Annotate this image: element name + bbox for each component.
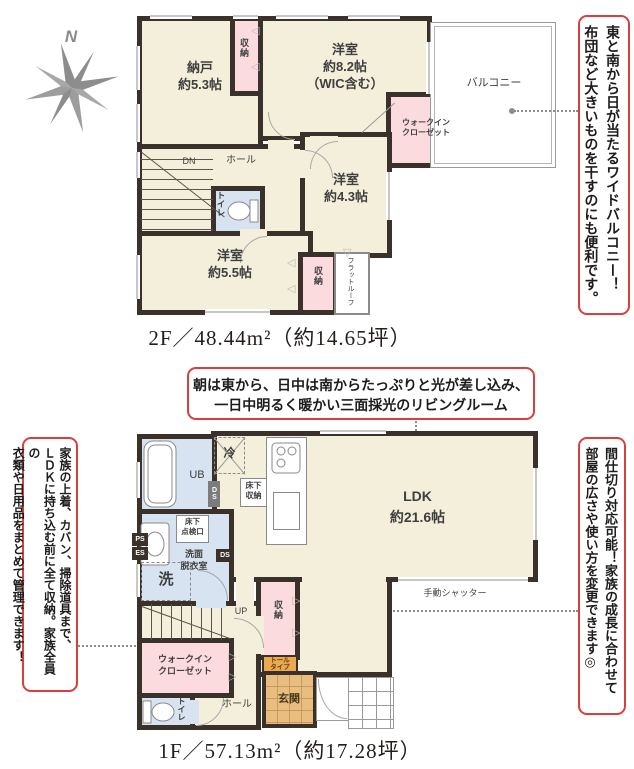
floorplan-page: N — [0, 0, 634, 769]
stove-icon — [271, 442, 301, 474]
connector-partition — [378, 610, 578, 612]
closet-door-triangle: ▷ — [228, 672, 236, 683]
opening-ldk-partition — [302, 572, 386, 586]
1f-wic-label: ウォークイン クローゼット — [142, 654, 228, 677]
note-living-line1: 朝は東から、日中は南からたっぷりと光が差し込み、 — [189, 376, 533, 396]
closet-door-triangle: ▷ — [228, 652, 236, 663]
window — [426, 42, 432, 94]
inspection-label: 床下 点検口 — [176, 517, 209, 537]
window — [348, 13, 400, 19]
window — [233, 13, 258, 19]
ds1-label: DS — [211, 487, 218, 501]
note-balcony-line2: 布団など大きいものを干すのにも便利です。 — [580, 25, 602, 305]
compass: N — [22, 26, 122, 136]
closet-door-triangle: ◁ — [287, 258, 295, 269]
ds-shaft-2: DS — [216, 549, 234, 562]
floor1-caption: 1F／57.13m²（約17.28坪） — [110, 735, 470, 765]
ps-label: PS — [135, 536, 144, 543]
toilet-icon — [141, 699, 177, 725]
2f-room55-label: 洋室 約5.5帖 — [175, 248, 285, 282]
1f-up-label: UP — [228, 606, 254, 618]
2f-closet-south-label: 収納 — [312, 266, 325, 286]
closet-door-triangle: ▷ — [292, 628, 300, 639]
closet-door-triangle: ▷ — [292, 596, 300, 607]
window — [276, 13, 328, 19]
1f-ldk-label: LDK 約21.6帖 — [355, 486, 480, 528]
opening-corridor — [236, 572, 254, 606]
2f-room82-label: 洋室 約8.2帖 （WIC含む） — [275, 42, 415, 93]
1f-storage-label: 収納 — [272, 600, 285, 620]
2f-nando-label: 納戸 約5.3帖 — [145, 60, 255, 94]
window — [533, 468, 539, 540]
floor2-caption: 2F／48.44m²（約14.65坪） — [115, 322, 445, 352]
2f-hall-label: ホール — [218, 154, 264, 167]
ds2-label: DS — [220, 552, 230, 559]
connector-balcony-dot — [509, 108, 515, 114]
refrigerator-label: 冷 — [214, 446, 245, 462]
note-balcony-line1: 東と南から日が当たるワイドバルコニー！ — [601, 25, 623, 305]
kitchen-sink — [273, 492, 300, 530]
2f-flat-roof-label: フラットルーフ — [345, 257, 355, 306]
es-label: ES — [135, 550, 144, 557]
window — [398, 577, 528, 583]
1f-shutter-label: 手動シャッター — [400, 588, 510, 600]
window — [134, 152, 140, 178]
window — [205, 309, 270, 315]
ps-shaft: PS — [132, 533, 148, 546]
window — [150, 13, 192, 19]
1f-tall-cabinet-label: トール タイプ — [270, 657, 290, 671]
note-storage: 家族の上着、カバン、掃除道具まで、 ＬＤＫに持ち込む前に全て収納。家族全員の 衣… — [22, 437, 78, 692]
2f-balcony — [430, 22, 556, 168]
note-living: 朝は東から、日中は南からたっぷりと光が差し込み、 一日中明るく暖かい三面採光のリ… — [187, 367, 535, 420]
note-partition: 間仕切り対応可能！家族の成長に合わせて 部屋の広さや使い方を変更できます◎ — [578, 437, 626, 715]
2f-room43-label: 洋室 約4.3帖 — [302, 172, 390, 206]
2f-closet-north-label: 収納 — [238, 38, 251, 58]
note-storage-line3: 衣類や日用品をまとめて管理できます！ — [10, 447, 26, 682]
window — [134, 564, 140, 597]
es-shaft: ES — [132, 547, 148, 560]
note-storage-line2: ＬＤＫに持ち込む前に全て収納。家族全員の — [25, 447, 56, 682]
1f-porch — [348, 677, 394, 729]
window — [134, 104, 140, 142]
door-opening — [196, 599, 226, 608]
2f-wic-label: ウォークイン クローゼット — [390, 118, 462, 139]
2f-toilet-label: トイレ — [215, 191, 227, 217]
note-living-line2: 一日中明るく暖かい三面採光のリビングルーム — [189, 396, 533, 416]
note-balcony: 東と南から日が当たるワイドバルコニー！ 布団など大きいものを干すのにも便利です。 — [578, 15, 630, 315]
floor-storage-label: 床下 収納 — [240, 481, 267, 500]
window — [134, 46, 140, 90]
note-partition-line1: 間仕切り対応可能！家族の成長に合わせて — [601, 447, 621, 705]
window — [134, 255, 140, 299]
connector-balcony — [514, 110, 578, 112]
window — [134, 462, 140, 498]
1f-genkan-label: 玄関 — [266, 692, 312, 706]
ds-shaft-1: DS — [208, 481, 220, 507]
note-partition-line2: 部屋の広さや使い方を変更できます◎ — [581, 447, 601, 705]
compass-rose-icon — [22, 42, 122, 134]
bathtub-icon — [143, 440, 177, 508]
1f-toilet-label: トイレ — [176, 697, 187, 721]
note-storage-line1: 家族の上着、カバン、掃除道具まで、 — [56, 447, 72, 682]
closet-door-triangle: ◁ — [287, 284, 295, 295]
window — [320, 428, 386, 434]
washer-label: 洗 — [141, 570, 191, 590]
2f-dn-label: DN — [176, 156, 202, 168]
door-opening — [268, 140, 294, 149]
closet-door-triangle: ◁ — [251, 26, 259, 37]
1f-hall-label: ホール — [214, 698, 260, 711]
toilet-icon — [226, 198, 260, 224]
2f-balcony-label: バルコニー — [450, 76, 538, 90]
